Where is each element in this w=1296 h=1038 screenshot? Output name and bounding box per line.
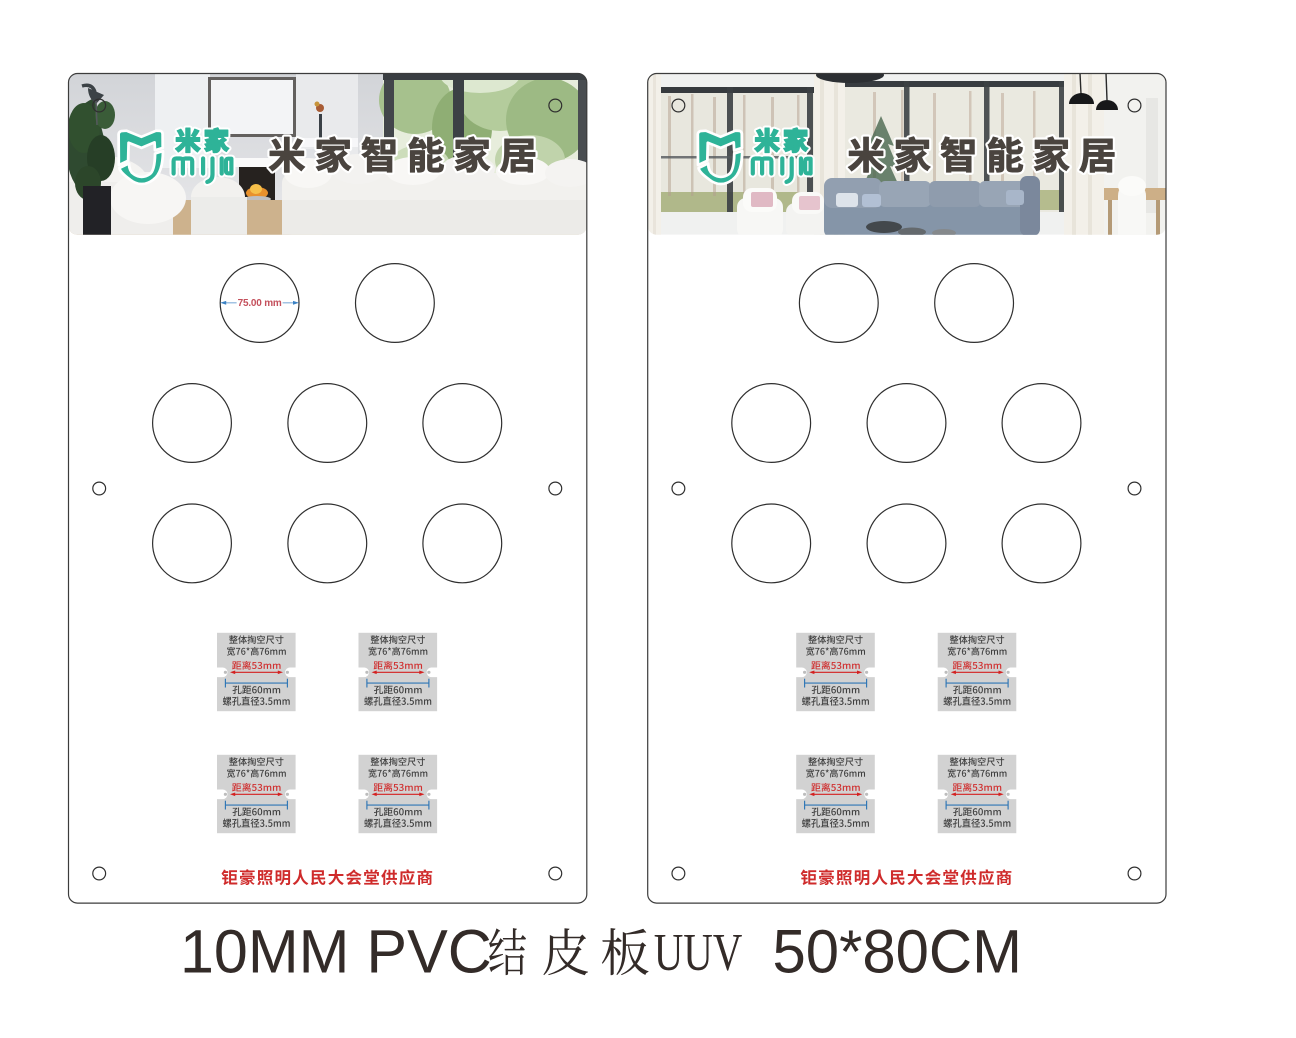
svg-text:10MM PVC: 10MM PVC [180, 918, 492, 986]
svg-text:50*80CM: 50*80CM [773, 918, 1023, 986]
svg-text:75.00 mm: 75.00 mm [238, 298, 282, 309]
